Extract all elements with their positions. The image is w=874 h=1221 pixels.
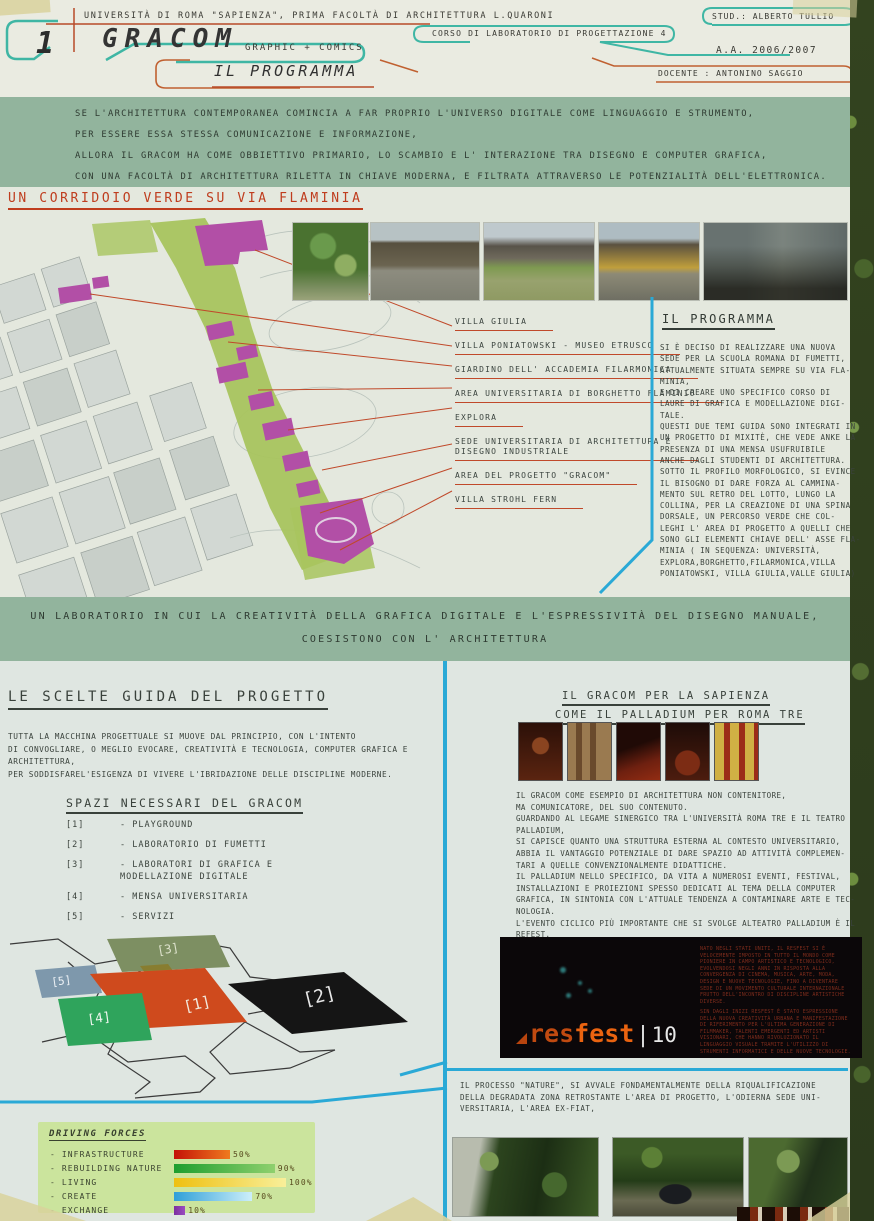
sapienza-body: IL GRACOM COME ESEMPIO DI ARCHITETTURA N… (516, 790, 872, 941)
site-photo-building (370, 222, 480, 301)
nature-text: IL PROCESSO "NATURE", SI AVVALE FONDAMEN… (460, 1080, 865, 1115)
site-photo-pavilion (483, 222, 595, 301)
df-bar (174, 1192, 252, 1201)
palladium-photo (714, 722, 759, 781)
intro-line: ALLORA IL GRACOM HA COME OBBIETTIVO PRIM… (75, 151, 768, 161)
middle-band-line: COESISTONO CON L' ARCHITETTURA (0, 634, 850, 645)
lower-section: LE SCELTE GUIDA DEL PROGETTO TUTTA LA MA… (0, 661, 850, 1221)
cyan-line-diagram (0, 1088, 447, 1102)
site-photo-yellow-building (598, 222, 700, 301)
df-row: - EXCHANGE10% (50, 1204, 206, 1216)
middle-band: UN LABORATORIO IN CUI LA CREATIVITÀ DELL… (0, 597, 850, 661)
df-row: - CREATE70% (50, 1190, 273, 1202)
palladium-photo (567, 722, 612, 781)
driving-forces-box: DRIVING FORCES - INFRASTRUCTURE50% - REB… (38, 1122, 315, 1213)
df-bar (174, 1164, 275, 1173)
block-5-label: [5] (51, 973, 72, 989)
middle-band-line: UN LABORATORIO IN CUI LA CREATIVITÀ DELL… (0, 611, 850, 622)
driving-forces-title: DRIVING FORCES (49, 1129, 146, 1141)
resfest-text-2: SIN DAGLI INIZI RESFEST È STATO ESPRESSI… (700, 1009, 852, 1055)
intro-band: SE L'ARCHITETTURA CONTEMPORANEA COMINCIA… (0, 97, 850, 187)
university-line: UNIVERSITÀ DI ROMA "SAPIENZA", PRIMA FAC… (84, 11, 554, 21)
spazi-item: [1]- PLAYGROUND (66, 819, 406, 831)
palladium-photo (665, 722, 710, 781)
spazi-item: [3]- LABORATORI DI GRAFICA E MODELLAZION… (66, 859, 406, 883)
page-title: IL PROGRAMMA (214, 62, 358, 80)
nature-photo (452, 1137, 599, 1217)
scelte-body: TUTTA LA MACCHINA PROGETTUALE SI MUOVE D… (8, 731, 444, 781)
programma-body: SI È DECISO DI REALIZZARE UNA NUOVA SEDE… (660, 342, 868, 579)
spazi-item: [4]- MENSA UNIVERSITARIA (66, 891, 406, 903)
resfest-logo: res fest | 10 (516, 1019, 677, 1048)
gracom-logo: GRACOM (102, 24, 238, 54)
header: 1 UNIVERSITÀ DI ROMA "SAPIENZA", PRIMA F… (0, 0, 850, 97)
spazi-heading: SPAZI NECESSARI DEL GRACOM (66, 796, 303, 814)
intro-line: SE L'ARCHITETTURA CONTEMPORANEA COMINCIA… (75, 109, 754, 119)
df-row: - REBUILDING NATURE90% (50, 1162, 296, 1174)
df-bar (174, 1178, 286, 1187)
cyan-line-nature (447, 1068, 848, 1071)
site-photo-trees (292, 222, 369, 301)
scelte-heading: LE SCELTE GUIDA DEL PROGETTO (8, 689, 328, 710)
academic-year: A.A. 2006/2007 (716, 45, 817, 56)
poster: 1 UNIVERSITÀ DI ROMA "SAPIENZA", PRIMA F… (0, 0, 850, 1221)
sapienza-heading-line1: IL GRACOM PER LA SAPIENZA (562, 690, 770, 706)
resfest-panel: NATO NEGLI STATI UNITI, IL RESFEST SI È … (500, 937, 862, 1058)
intro-line: PER ESSERE ESSA STESSA COMUNICAZIONE E I… (75, 130, 418, 140)
course-label: CORSO DI LABORATORIO DI PROGETTAZIONE 4 (432, 29, 667, 38)
nature-photo (612, 1137, 744, 1217)
site-photo-street (703, 222, 848, 301)
spazi-list: [1]- PLAYGROUND [2]- LABORATORIO DI FUME… (66, 819, 406, 931)
program-blocks-diagram: [1] [2] [3] [4] [5] (0, 922, 450, 1107)
panel-number: 1 (36, 26, 54, 61)
logo-subtitle: GRAPHIC + COMICS (245, 43, 364, 53)
corridor-section: UN CORRIDOIO VERDE SU VIA FLAMINIA (0, 187, 850, 597)
resfest-text-1: NATO NEGLI STATI UNITI, IL RESFEST SI È … (700, 946, 852, 1005)
df-row: - LIVING100% (50, 1176, 313, 1188)
cyan-divider-corridor (588, 297, 660, 597)
palladium-photo (616, 722, 661, 781)
df-bar (174, 1150, 230, 1159)
df-row: - INFRASTRUCTURE50% (50, 1148, 251, 1160)
df-bar (174, 1206, 185, 1215)
programma-heading: IL PROGRAMMA (662, 312, 775, 330)
palladium-photo (518, 722, 563, 781)
resfest-logo-mark-icon (516, 1033, 527, 1044)
intro-line: CON UNA FACOLTÀ DI ARCHITETTURA RILETTA … (75, 172, 827, 182)
teacher-label: DOCENTE : ANTONINO SAGGIO (658, 69, 803, 78)
spazi-item: [2]- LABORATORIO DI FUMETTI (66, 839, 406, 851)
poster-photo: 1 UNIVERSITÀ DI ROMA "SAPIENZA", PRIMA F… (0, 0, 874, 1221)
